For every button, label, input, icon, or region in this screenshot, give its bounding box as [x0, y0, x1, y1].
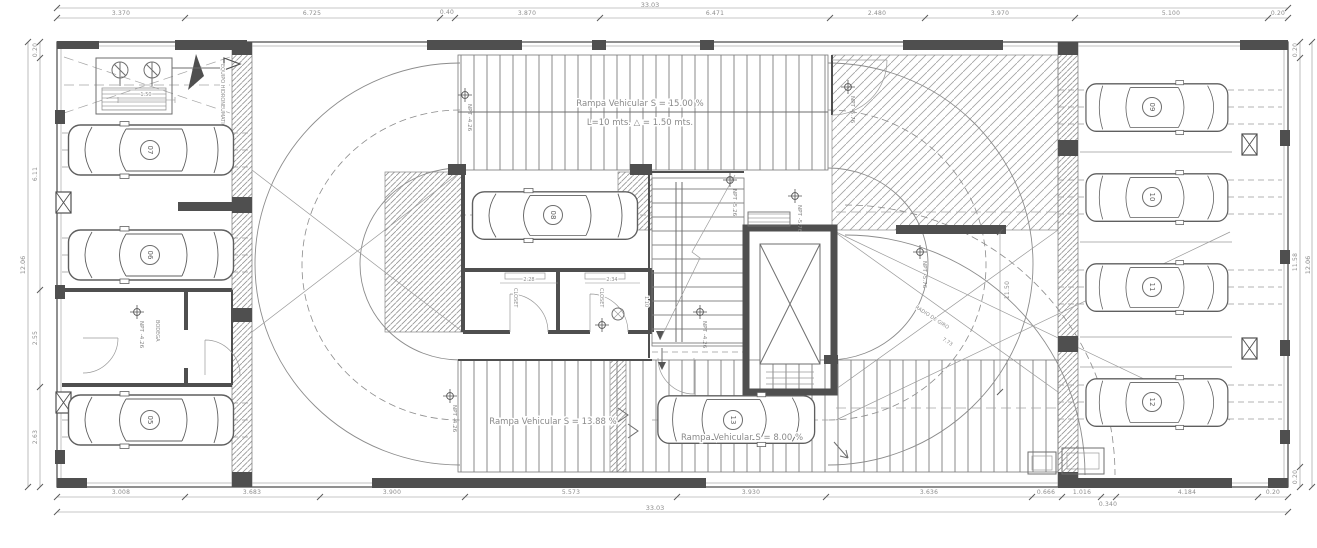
- dim-bottom: 0.20: [1266, 489, 1280, 496]
- dim-top: 2.480: [868, 10, 886, 17]
- car-number: 08: [549, 211, 557, 220]
- equipment-label: EQUIPO HIDRONEUMATICO: [219, 64, 225, 131]
- dim-bottom: 3.683: [243, 489, 261, 496]
- car-number: 06: [146, 251, 154, 260]
- wall-vent-box: [1242, 338, 1257, 359]
- car-number: 12: [1148, 398, 1156, 407]
- car-number: 09: [1148, 103, 1156, 112]
- car-number: 05: [146, 416, 154, 425]
- stair-core: [652, 175, 744, 370]
- car-number: 13: [729, 416, 737, 425]
- dim-bottom: 3.636: [920, 489, 938, 496]
- npt-label: NPT -5.76: [921, 261, 927, 289]
- dim-left: 0.20: [32, 43, 39, 57]
- ramp-top-label-2: L=10 mts. △ = 1.50 mts.: [587, 118, 693, 128]
- wall-vent-box: [1242, 134, 1257, 155]
- npt-label: NPT -5.76: [849, 96, 855, 124]
- dim-bottom: 3.900: [383, 489, 401, 496]
- dim-left: 2.55: [32, 331, 39, 345]
- dim-right-total: 12.06: [1304, 256, 1312, 275]
- left-dimension-line: 0.20 6.11 2.55 2.63 12.06: [19, 39, 43, 490]
- car-number: 11: [1148, 283, 1156, 292]
- dim-bottom: 1.016: [1073, 489, 1091, 496]
- dim-top-total: 33.03: [641, 1, 660, 9]
- closet-left-label: CLOSET: [512, 288, 518, 308]
- dim-bottom: 3.008: [112, 489, 130, 496]
- npt-label: NPT -4.26: [451, 405, 457, 433]
- dim-inner-1150: 11.50: [1004, 281, 1011, 299]
- dim-top: 0.20: [1271, 10, 1285, 17]
- bottom-dimension-line: 3.008 3.683 3.900 5.573 3.930 3.636 0.66…: [54, 489, 1291, 515]
- dim-top: 3.370: [112, 10, 130, 17]
- car-number: 07: [146, 146, 154, 155]
- dim-bottom: 0.340: [1099, 501, 1117, 508]
- dim-bottom: 5.573: [562, 489, 580, 496]
- dim-right: 0.20: [1292, 470, 1299, 484]
- npt-label: NPT -4.26: [466, 104, 472, 132]
- radio-giro-label: RADIO DE GIRO: [914, 305, 950, 331]
- top-dimension-line: 3.370 6.725 0.40 3.870 6.471 2.480 3.970…: [54, 1, 1291, 21]
- dim-right: 11.58: [1292, 253, 1299, 271]
- right-dimension-line: 0.20 11.58 0.20 12.06: [1292, 39, 1315, 490]
- npt-label: NPT -4.26: [138, 321, 144, 349]
- radio-giro-value: 7.73: [941, 337, 954, 348]
- dim-inner-228: 2.28: [523, 277, 534, 283]
- floor-plan-drawing: 1.50 EQUIPO HIDRONEUMATICO 05 06 07 08 0…: [0, 0, 1317, 548]
- hydropneumatic-equipment: 1.50 EQUIPO HIDRONEUMATICO: [96, 54, 240, 131]
- dim-bottom-total: 33.03: [646, 504, 665, 512]
- dim-top: 3.970: [991, 10, 1009, 17]
- wall-vent-box: [56, 192, 71, 213]
- dim-left: 6.11: [32, 167, 39, 181]
- ramp-bottom-left-label: Rampa Vehicular S = 13.88 %: [489, 417, 617, 427]
- dim-bottom: 0.666: [1037, 489, 1055, 496]
- npt-label: NPT -4.26: [701, 321, 707, 349]
- dim-bottom: 3.930: [742, 489, 760, 496]
- dim-right: 0.20: [1292, 43, 1299, 57]
- dim-equipment: 1.50: [140, 92, 151, 98]
- dim-bottom: 4.184: [1178, 489, 1196, 496]
- dim-top: 5.100: [1162, 10, 1180, 17]
- npt-label: NPT -5.76: [796, 205, 802, 233]
- closet-right-label: CLOSET: [598, 288, 604, 308]
- bodega-label: BODEGA: [154, 320, 160, 342]
- npt-label: NPT -5.26: [731, 189, 737, 217]
- dim-top: 3.870: [518, 10, 536, 17]
- dim-top: 6.725: [303, 10, 321, 17]
- dim-top: 6.471: [706, 10, 724, 17]
- ramp-bottom-right-label: Rampa Vehicular S = 8.00 %: [681, 433, 803, 443]
- dim-top: 0.40: [440, 9, 454, 16]
- dim-inner-234: 2.34: [606, 277, 617, 283]
- dim-inner-110: 1.10: [643, 296, 649, 307]
- ramp-top-label-1: Rampa Vehicular S = 15.00 %: [576, 99, 704, 109]
- dim-left-total: 12.06: [19, 256, 27, 275]
- car-number: 10: [1148, 193, 1156, 202]
- dim-left: 2.63: [32, 430, 39, 444]
